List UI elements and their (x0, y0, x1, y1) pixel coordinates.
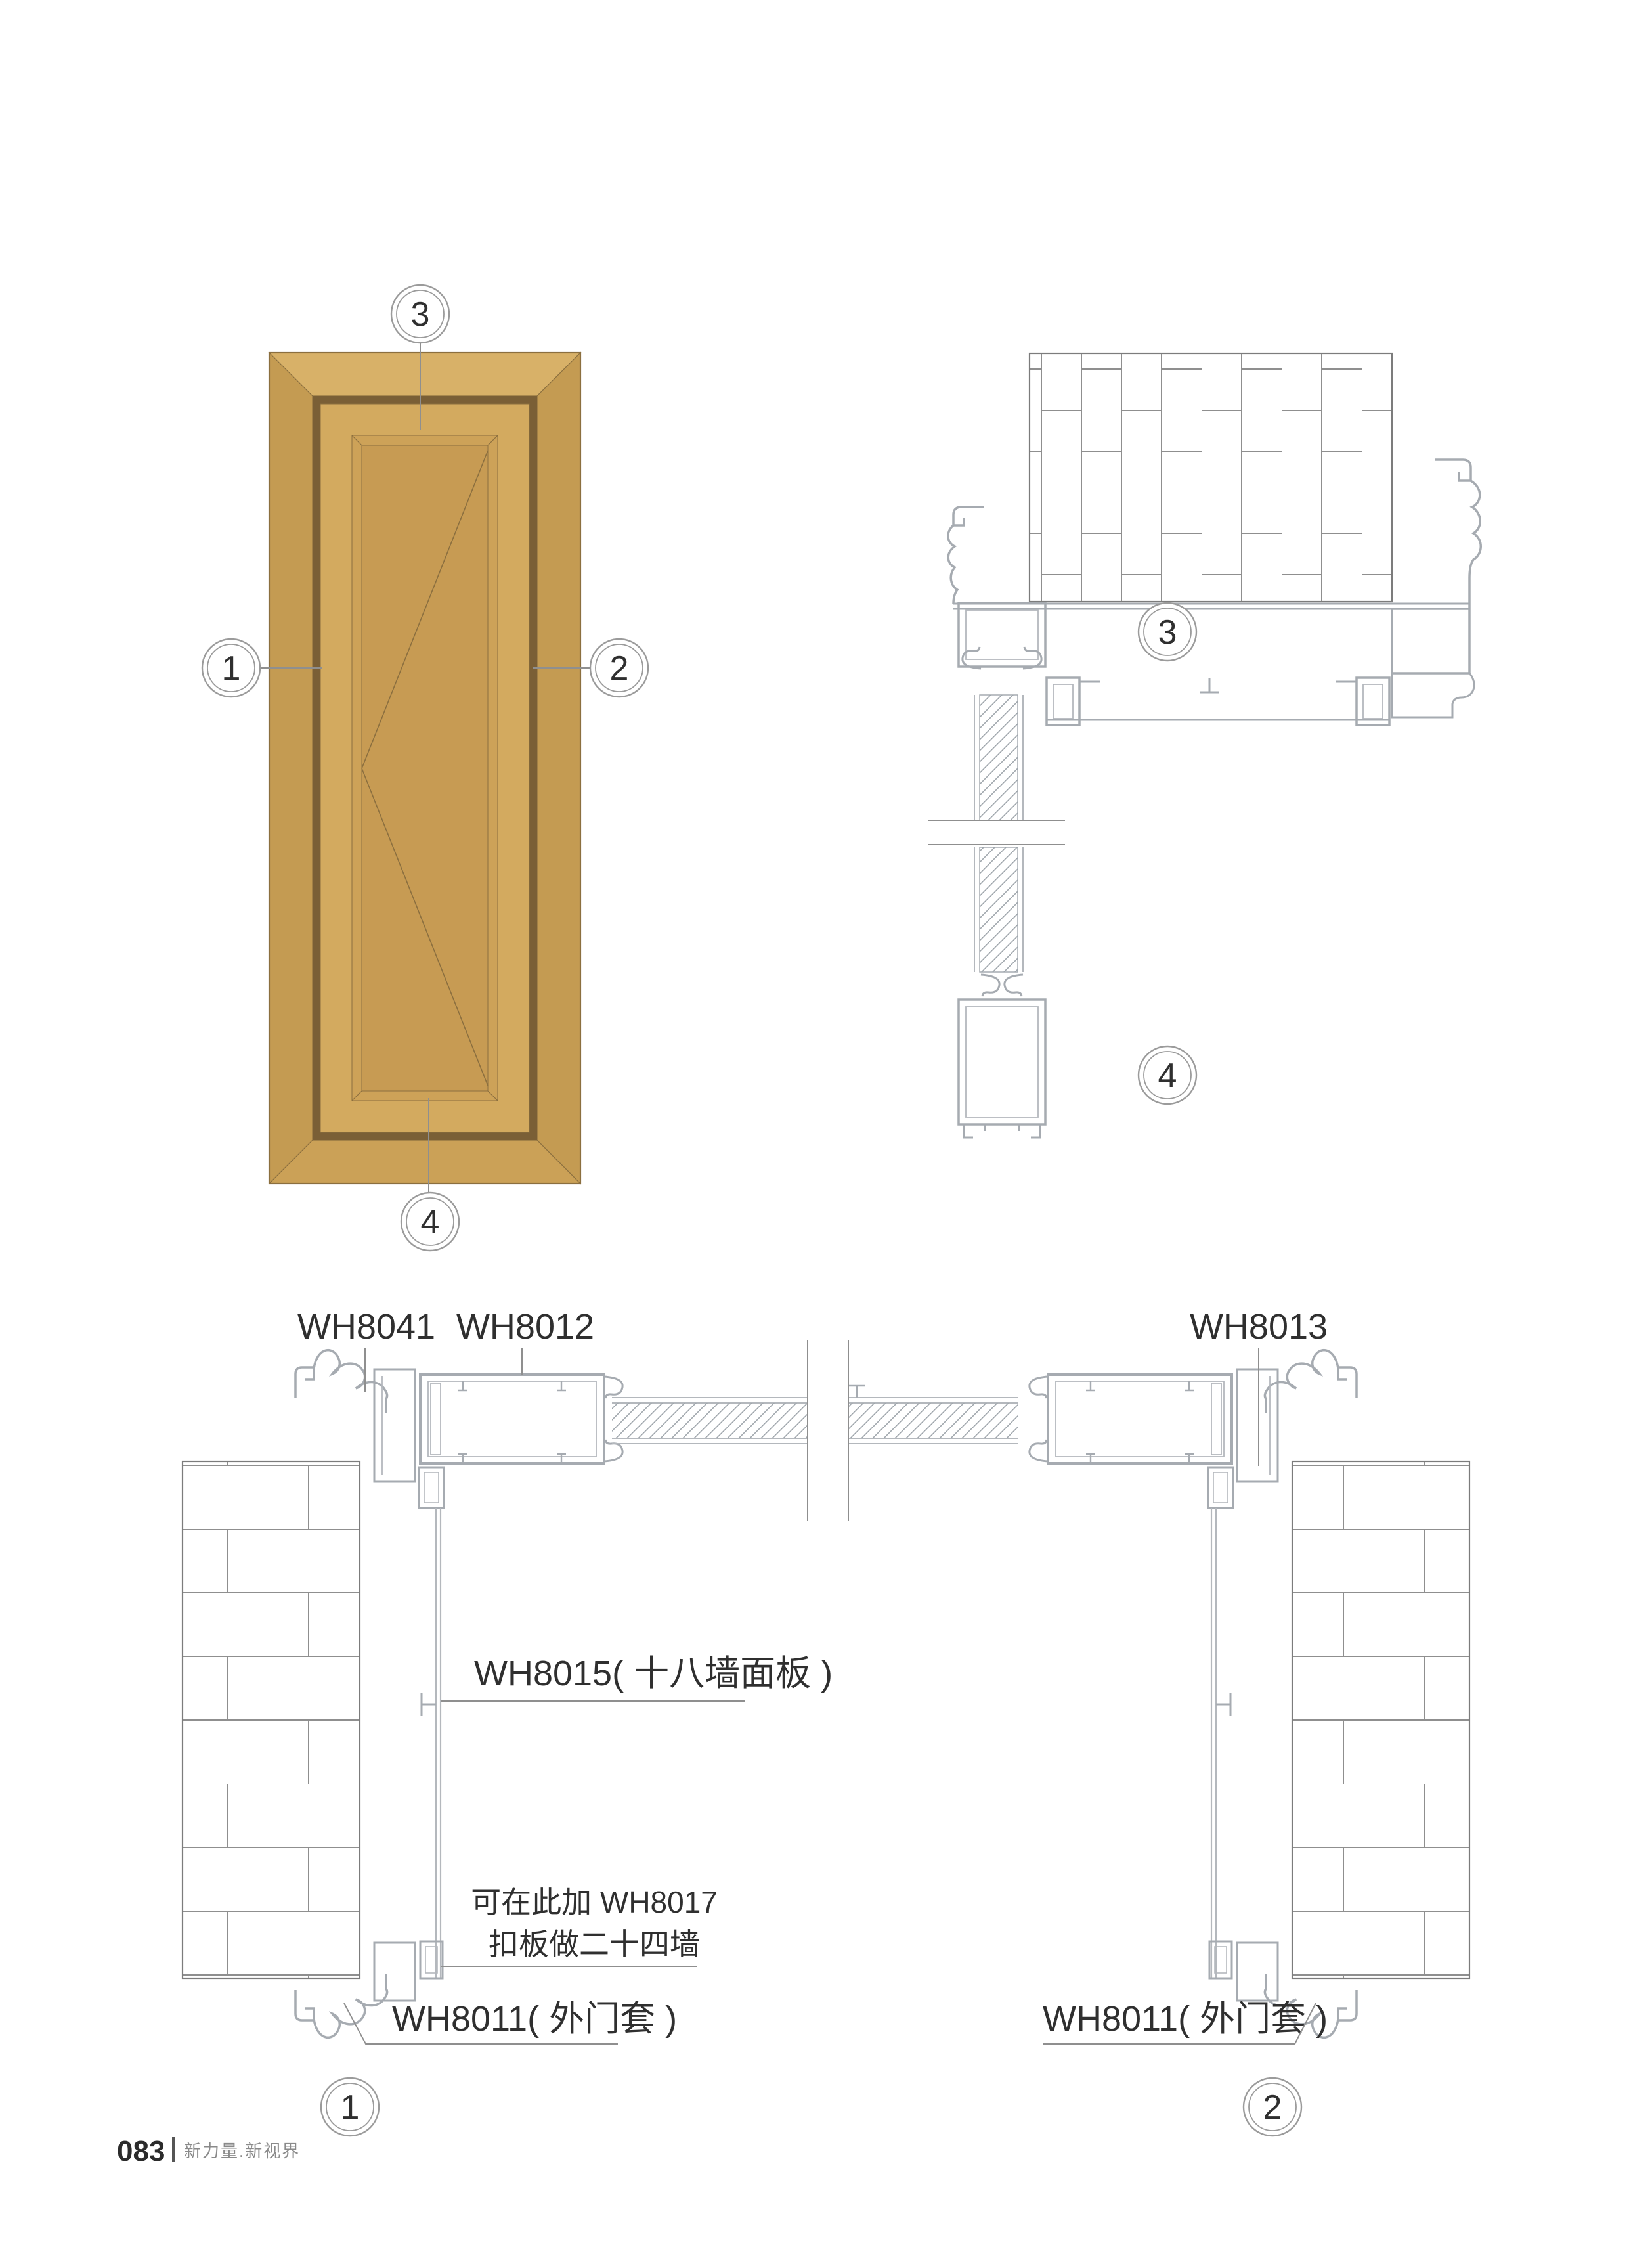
balloon-elevation-left: 1 (202, 639, 260, 697)
catalog-page: 3 1 2 4 (0, 0, 1652, 2258)
label-wh8012: WH8012 (456, 1307, 594, 1346)
balloon-plan-right: 2 (1244, 2078, 1301, 2136)
label-wh8011-left: WH8011( 外门套 ) (392, 1999, 677, 2039)
balloon-section-sill: 4 (1139, 1046, 1196, 1104)
plan-section-detail: WH8041 WH8012 WH8013 WH8015( 十八墙面板 ) 可在此… (183, 1307, 1469, 2136)
technical-drawing-canvas: 3 1 2 4 (0, 0, 1652, 2258)
vertical-section-detail: 3 4 (928, 353, 1481, 1138)
plan-break-lines (808, 1340, 848, 1521)
balloon-number: 3 (1158, 613, 1177, 652)
balloon-plan-left: 1 (321, 2078, 379, 2136)
label-wh8041: WH8041 (297, 1307, 435, 1346)
balloon-number: 3 (411, 296, 430, 334)
balloon-number: 4 (421, 1203, 440, 1241)
door-elevation: 3 1 2 4 (202, 285, 648, 1251)
section-brick-wall (1030, 353, 1392, 602)
page-footer: 083 新力量.新视界 (117, 2135, 300, 2167)
balloon-number: 4 (1158, 1057, 1177, 1095)
section-break-lines (928, 820, 1065, 845)
balloon-number: 2 (1263, 2089, 1282, 2127)
balloon-elevation-top: 3 (391, 285, 449, 343)
door-panel (362, 445, 488, 1091)
balloon-elevation-bottom: 4 (401, 1193, 459, 1251)
page-number: 083 (117, 2135, 165, 2167)
balloon-number: 2 (610, 650, 629, 688)
right-jamb-assembly (1030, 1350, 1469, 2038)
door-frame-left (269, 353, 313, 1184)
footer-divider (172, 2137, 175, 2162)
door-frame-right (537, 353, 580, 1184)
balloon-number: 1 (341, 2089, 360, 2127)
balloon-elevation-right: 2 (590, 639, 648, 697)
door-frame-bottom (269, 1140, 580, 1184)
door-frame-top (269, 353, 580, 396)
balloon-section-head: 3 (1139, 603, 1196, 661)
label-wh8015: WH8015( 十八墙面板 ) (474, 1654, 833, 1693)
plan-door-leaf (612, 1340, 1018, 1521)
note-wh8017-line2: 扣板做二十四墙 (489, 1927, 700, 1961)
note-wh8017-line1: 可在此加 WH8017 (471, 1885, 718, 1919)
label-wh8011-right: WH8011( 外门套 ) (1043, 1999, 1328, 2039)
footer-slogan: 新力量.新视界 (184, 2141, 300, 2161)
balloon-number: 1 (222, 650, 241, 688)
label-wh8013: WH8013 (1190, 1307, 1328, 1346)
